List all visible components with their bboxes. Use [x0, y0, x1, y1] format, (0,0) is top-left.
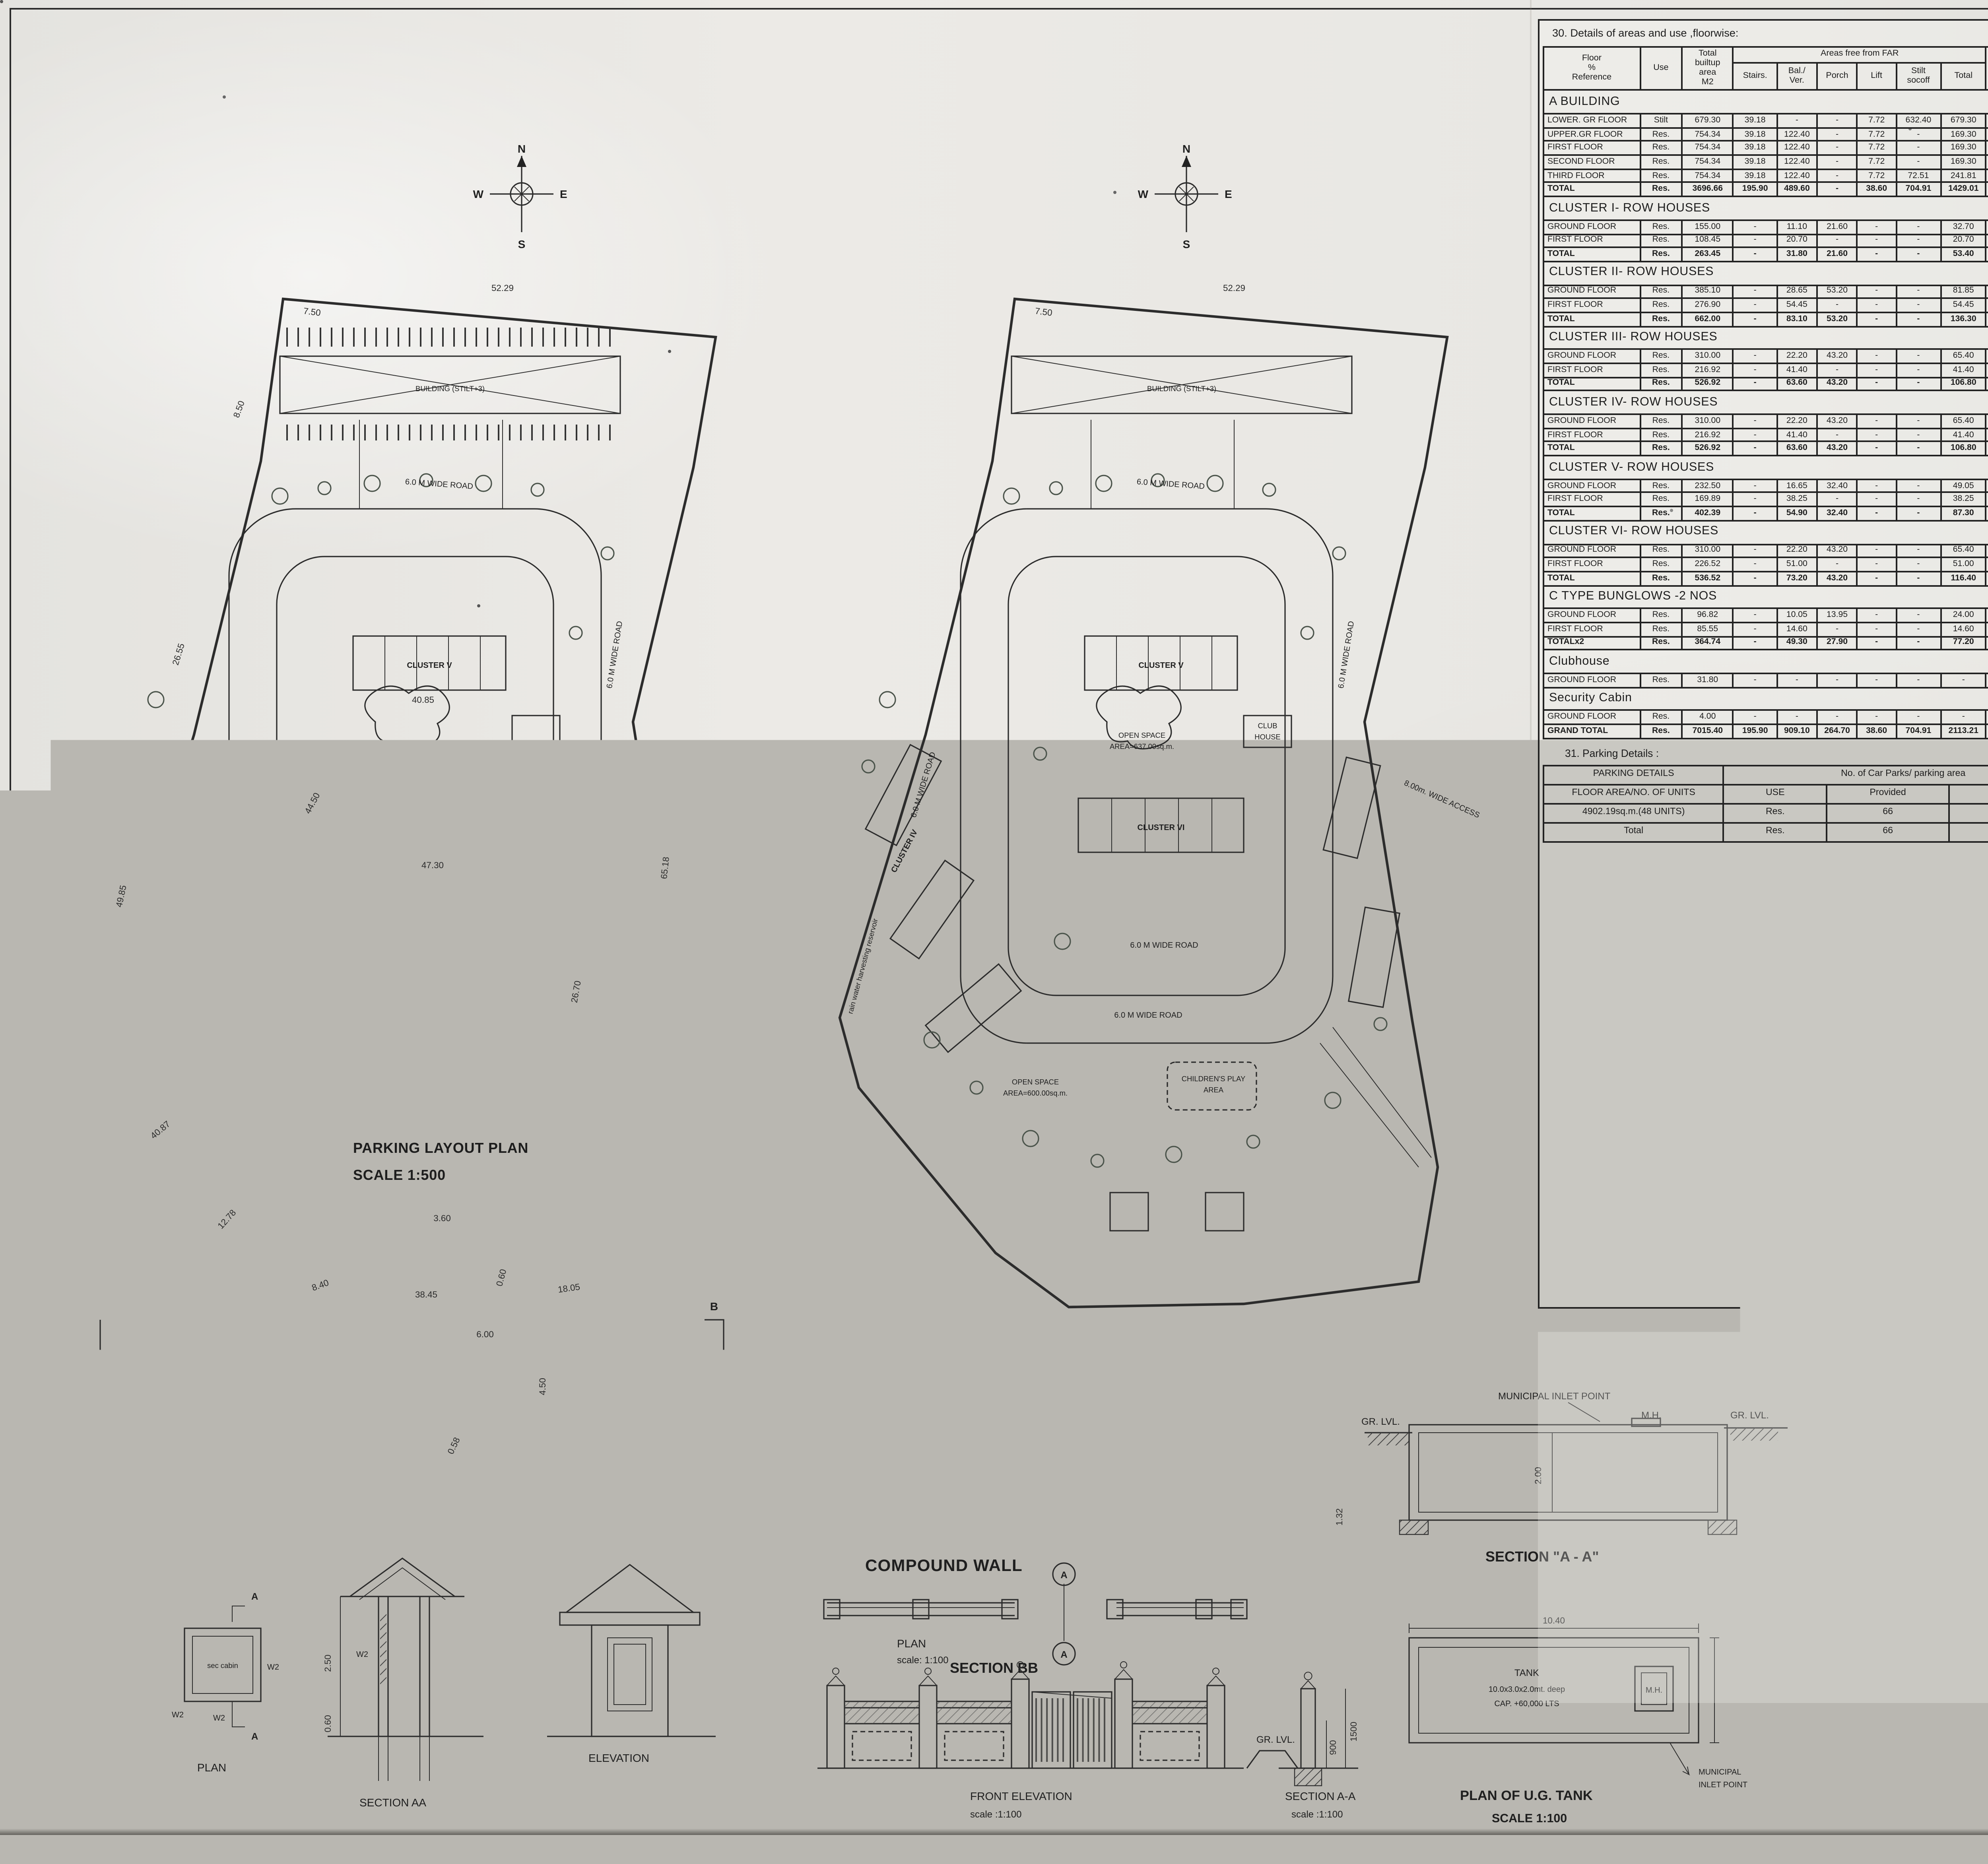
handwritten-note: Please check letter No. JTP| 415 |Queula…	[1803, 1472, 1988, 1539]
table-cell: SECOND FLOOR	[1543, 155, 1640, 169]
table-cell: 632.40	[1896, 114, 1941, 128]
ug-tank-section: MUNICIPAL INLET POINT M.H. GR. LVL. GR. …	[1361, 1380, 1791, 1568]
table-cell: FIRST FLOOR	[1543, 558, 1640, 572]
table-cell: 122.40	[1777, 142, 1817, 155]
table-cell: 66	[1949, 822, 1988, 842]
table-row: GROUND FLOORRes.155.00-11.1021.60--32.70…	[1543, 220, 1988, 234]
compass-n: N	[518, 143, 526, 155]
road-label: 6.0 M WIDE ROAD	[1114, 1011, 1182, 1020]
table-cell: 679.30	[1941, 114, 1986, 128]
table-cell: 7.72	[1857, 114, 1896, 128]
dim: 0.60	[323, 1715, 333, 1732]
table-cell: GRAND TOTAL	[1543, 724, 1640, 738]
table-cell: -	[1734, 248, 1777, 262]
table-cell: TOTAL	[1543, 507, 1640, 521]
table-cell: 232.50	[1682, 479, 1734, 493]
dim: 7.50	[303, 306, 321, 318]
dim: 8.40	[1042, 1278, 1062, 1293]
table-row: TOTALRes.3696.66195.90489.60-38.60704.91…	[1543, 183, 1988, 197]
open-space-area: AREA=637.00sq.m.	[378, 742, 443, 751]
table-cell: Res.	[1640, 711, 1682, 725]
table-cell: TOTALx2	[1543, 636, 1640, 650]
prop-cwall-label: Prop C/Wall	[1005, 1175, 1041, 1206]
table-row: TOTALRes.526.92-63.6043.20--106.80420.12…	[1543, 377, 1988, 391]
table-cell: -	[1941, 673, 1986, 687]
col-header-stilt: Stilt socoff	[1896, 63, 1941, 91]
table-cell: 310.00	[1682, 544, 1734, 558]
table-cell: 63.60	[1777, 442, 1817, 456]
table-row: CLUSTER V- ROW HOUSES	[1543, 456, 1988, 479]
table-cell: -	[1817, 623, 1857, 636]
dim: 47.30	[421, 860, 444, 870]
table-cell: 83.10	[1777, 312, 1817, 326]
table-cell: GROUND FLOOR	[1543, 711, 1640, 725]
table-cell: Res.	[1640, 636, 1682, 650]
road-label: 6.0 M WIDE ROAD	[605, 621, 625, 689]
table-cell: 65.40	[1941, 544, 1986, 558]
details-table-title: 30. Details of areas and use ,floorwise:	[1552, 29, 1988, 40]
table-cell: 526.92	[1682, 377, 1734, 391]
table-cell: 364.74	[1682, 636, 1734, 650]
ground-level-label: G.LVL	[712, 1461, 739, 1472]
table-cell: 11.10	[1777, 220, 1817, 234]
cluster-v-label: CLUSTER V	[1138, 661, 1184, 670]
table-cell: -	[1857, 609, 1896, 623]
table-cell: 1429.01	[1941, 183, 1986, 197]
table-cell: 63.60	[1777, 377, 1817, 391]
table-row: CLUSTER IV- ROW HOUSES	[1543, 391, 1988, 414]
table-cell: 106.80	[1941, 442, 1986, 456]
table-row: TOTALRes.263.45-31.8021.60--53.40210.052…	[1543, 248, 1988, 262]
table-cell: THIRD FLOOR	[1543, 169, 1640, 183]
table-cell: 43.20	[1817, 572, 1857, 586]
table-cell: -	[1817, 363, 1857, 377]
table-cell: Res.	[1640, 248, 1682, 262]
table-cell: -	[1734, 623, 1777, 636]
table-row: GRAND TOTALRes.7015.40195.90909.10264.70…	[1543, 724, 1988, 738]
table-cell: -	[1857, 507, 1896, 521]
window-mark: W2	[267, 1663, 279, 1672]
plan-label: PLAN	[897, 1637, 926, 1650]
table-cell: FIRST FLOOR	[1543, 623, 1640, 636]
ug-tank-mark	[1390, 671, 1415, 687]
table-row: GROUND FLOORRes.31.80------31.800.39%	[1543, 673, 1988, 687]
table-cell: FIRST FLOOR	[1543, 234, 1640, 248]
col-header-total-builtup: Total builtup area M2	[1682, 47, 1734, 91]
table-cell: 66	[1827, 822, 1949, 842]
table-cell: -	[1734, 363, 1777, 377]
table-section-label: CLUSTER II- ROW HOUSES	[1543, 262, 1988, 285]
table-cell: -	[1857, 220, 1896, 234]
compound-wall-title: COMPOUND WALL	[865, 1556, 1023, 1575]
table-cell: -	[1777, 711, 1817, 725]
col-header-lift: Lift	[1857, 63, 1896, 91]
table-cell: -	[1734, 479, 1777, 493]
parking-header: No. of Car Parks/ parking area	[1724, 765, 1988, 784]
road-label: 6.0 M WIDE ROAD	[178, 751, 206, 819]
table-cell: 263.45	[1682, 248, 1734, 262]
col-header-porch: Porch	[1817, 63, 1857, 91]
table-cell: 51.00	[1777, 558, 1817, 572]
table-cell: 704.91	[1896, 183, 1941, 197]
dim: 52.29	[1223, 283, 1245, 293]
table-cell: 287.54	[1986, 636, 1988, 650]
front-elevation-scale: scale :1:100	[970, 1809, 1021, 1820]
table-cell: 210.05	[1986, 248, 1988, 262]
table-cell: 169.30	[1941, 128, 1986, 142]
table-cell: -	[1734, 572, 1777, 586]
fold-line	[1530, 0, 1532, 1336]
table-cell: 70.95	[1986, 623, 1988, 636]
table-cell: Res.	[1640, 220, 1682, 234]
ug-tank-label: U.G Tank	[1423, 661, 1453, 669]
table-cell: 909.10	[1777, 724, 1817, 738]
dim: 4.50	[538, 1378, 547, 1395]
tank-capacity-label: CAP. +60,000 LTS	[1494, 1699, 1559, 1708]
table-cell: Res.	[1724, 803, 1827, 822]
dim: 5.25	[258, 1365, 268, 1383]
table-cell: Res.	[1640, 142, 1682, 155]
table-cell: 73.20	[1777, 572, 1817, 586]
table-cell: -	[1896, 234, 1941, 248]
table-cell: -	[1896, 544, 1941, 558]
table-row: FIRST FLOORRes.226.52-51.00---51.00175.5…	[1543, 558, 1988, 572]
pool-area-label: AREA OF SWIMMING POOL=44. 00 M2	[270, 1431, 482, 1445]
table-cell: 7015.40	[1682, 724, 1734, 738]
table-cell: Res.	[1640, 285, 1682, 299]
table-cell: 53.40	[1941, 248, 1986, 262]
table-cell: -	[1896, 363, 1941, 377]
table-cell: 754.34	[1682, 169, 1734, 183]
table-cell: 43.20	[1817, 377, 1857, 391]
plan-label: PLAN	[197, 1761, 226, 1774]
table-row: FIRST FLOORRes.216.92-41.40---41.40175.5…	[1543, 428, 1988, 442]
children-play-label: CHILDREN'S PLAY	[1182, 1075, 1246, 1083]
table-cell: Res.	[1640, 363, 1682, 377]
table-cell: GROUND FLOOR	[1543, 609, 1640, 623]
section-a-mark: A	[1060, 1649, 1067, 1660]
building-label: BUILDING (STILT+3)	[1147, 384, 1216, 393]
col-header-use: Use	[1640, 47, 1682, 91]
transformer	[1365, 592, 1387, 604]
table-row: UPPER.GR FLOORRes.754.3439.18122.40-7.72…	[1543, 128, 1988, 142]
table-cell: 65.40	[1941, 414, 1986, 428]
table-cell: 7.72	[1857, 128, 1896, 142]
table-section-label: C TYPE BUNGLOWS -2 NOS	[1543, 585, 1988, 609]
table-cell: -	[1896, 414, 1941, 428]
municipal-inlet-label: INLET POINT	[1699, 1781, 1747, 1789]
table-row: FIRST FLOORRes.169.89-38.25---38.25131.6…	[1543, 493, 1988, 507]
table-cell: -	[1857, 558, 1896, 572]
table-cell: -	[1734, 349, 1777, 363]
municipal-inlet-label: MUNICIPAL	[1699, 1768, 1741, 1777]
road-label: 6.0 M WIDE ROAD	[1136, 477, 1205, 491]
table-cell: 489.60	[1777, 183, 1817, 197]
table-cell: 31.80	[1986, 673, 1988, 687]
table-cell: FIRST FLOOR	[1543, 493, 1640, 507]
table-cell: -	[1857, 234, 1896, 248]
table-cell: 754.34	[1682, 142, 1734, 155]
section-aa-label: SECTION A-A	[1285, 1790, 1356, 1802]
table-row: TOTALRes.526.92-63.6043.20--106.80420.12…	[1543, 442, 1988, 456]
table-cell: 96.82	[1682, 609, 1734, 623]
road-label: 6.0 M WIDE ROAD	[405, 477, 473, 491]
table-cell: -	[1857, 479, 1896, 493]
north-compass: N W E S	[477, 143, 566, 258]
table-cell: 122.40	[1777, 155, 1817, 169]
table-cell: 31.80	[1682, 673, 1734, 687]
wall-panels	[845, 1701, 1207, 1760]
table-cell: 512.54	[1986, 169, 1988, 183]
table-cell: -	[1896, 558, 1941, 572]
table-section-label: CLUSTER VI- ROW HOUSES	[1543, 520, 1988, 544]
table-cell: 54.45	[1777, 299, 1817, 312]
municipal-inlet-label: MUNICIPAL INLET POINT	[1498, 1391, 1611, 1402]
table-cell: Res.	[1640, 609, 1682, 623]
table-cell: TOTAL	[1543, 248, 1640, 262]
table-cell: Res.	[1640, 572, 1682, 586]
table-cell: 3696.66	[1682, 183, 1734, 197]
section-b-label: B	[710, 1300, 718, 1313]
table-cell: -	[1857, 623, 1896, 636]
table-cell: TOTAL	[1543, 377, 1640, 391]
table-section-label: Clubhouse	[1543, 650, 1988, 673]
table-cell: 226.52	[1682, 558, 1734, 572]
section-aa-label: SECTION AA	[359, 1796, 426, 1809]
section-aa-scale: scale :1:100	[1291, 1809, 1343, 1820]
tank-plan-label: PLAN OF U.G. TANK	[1460, 1788, 1593, 1803]
table-cell: -	[1734, 220, 1777, 234]
table-cell: -	[1734, 544, 1777, 558]
table-cell: 4902.19sq.m.(48 UNITS)	[1543, 803, 1724, 822]
table-cell: -	[1734, 312, 1777, 326]
north-compass: N W E S	[1142, 143, 1231, 258]
table-cell: 41.40	[1777, 428, 1817, 442]
table-cell: 244.60	[1986, 544, 1988, 558]
table-cell: 420.12	[1986, 377, 1988, 391]
open-space-label: OPEN SPACE	[387, 731, 434, 739]
table-cell: 310.00	[1682, 414, 1734, 428]
table-cell: Res.	[1640, 507, 1682, 521]
table-cell: -	[1734, 442, 1777, 456]
trees-note-prefix: NOTE-	[1268, 1156, 1296, 1167]
table-cell: 536.52	[1682, 572, 1734, 586]
villa-label: 'C' VILLA	[1114, 1240, 1144, 1248]
table-cell: -	[1896, 479, 1941, 493]
table-cell: -	[1857, 673, 1896, 687]
parking-details-table: PARKING DETAILS No. of Car Parks/ parkin…	[1543, 764, 1988, 842]
table-cell: 43.20	[1817, 349, 1857, 363]
table-cell: -	[1817, 493, 1857, 507]
table-cell: GROUND FLOOR	[1543, 479, 1640, 493]
table-cell: -	[1941, 711, 1986, 725]
table-cell: 7.72	[1857, 169, 1896, 183]
section-b-mark	[705, 1320, 724, 1361]
table-cell: 39.18	[1734, 155, 1777, 169]
table-cell: 4902.19	[1986, 724, 1988, 738]
children-play-label: AREA	[472, 1086, 492, 1094]
table-cell: 20.70	[1777, 234, 1817, 248]
table-cell: FIRST FLOOR	[1543, 363, 1640, 377]
transformer-label: 7.00x3.0 Transformer	[1375, 578, 1444, 587]
table-cell: TOTAL	[1543, 183, 1640, 197]
table-cell: Res.	[1640, 377, 1682, 391]
road-label: 6.0 M WIDE ROAD	[382, 1011, 450, 1020]
table-cell: 122.30	[1986, 220, 1988, 234]
table-cell: Res.	[1640, 349, 1682, 363]
parking-layout-plan-drawing: BUILDING (STILT+3) 6.0 M WIDE ROAD 6.0 M…	[41, 273, 741, 1164]
table-cell: Total	[1543, 822, 1724, 842]
table-cell: 216.92	[1682, 363, 1734, 377]
compass-e: E	[560, 188, 567, 200]
manhole-label: M.H.	[1641, 1410, 1662, 1421]
ground-level-label: GR. LVL.	[1256, 1734, 1295, 1745]
site-plan-title-line1: SITE PLAN	[1081, 1139, 1174, 1166]
dim: 7.50	[1035, 306, 1053, 318]
table-cell: 38.25	[1941, 493, 1986, 507]
table-cell: -	[1777, 114, 1817, 128]
dim: 10.40	[1543, 1616, 1565, 1625]
table-row: A BUILDING	[1543, 91, 1988, 114]
compass-s: S	[1183, 238, 1190, 250]
open-space-area: AREA=600.00sq.m.	[1003, 1089, 1068, 1097]
parking-plan-scale: SCALE 1:500	[353, 1162, 528, 1189]
parking-col: Provided	[1827, 784, 1949, 803]
table-cell: 264.70	[1817, 724, 1857, 738]
sec-cabin-room-label: sec cabin	[207, 1661, 238, 1670]
table-cell: -	[1817, 128, 1857, 142]
parking-col: USE	[1724, 784, 1827, 803]
cluster-vi-label: CLUSTER VI	[406, 823, 453, 832]
dim: 40.85	[412, 695, 434, 705]
rainwater-label: rain water harvesting reservoir	[846, 917, 879, 1014]
table-cell: 39.18	[1734, 114, 1777, 128]
table-cell: 41.40	[1941, 428, 1986, 442]
table-cell: -	[1896, 428, 1941, 442]
table-cell: 32.40	[1817, 479, 1857, 493]
security-cabin-label: cabin	[1423, 946, 1440, 954]
table-section-label: CLUSTER I- ROW HOUSES	[1543, 197, 1988, 220]
table-cell: -	[1857, 349, 1896, 363]
table-cell: 87.75	[1986, 234, 1988, 248]
table-cell: 43.20	[1817, 414, 1857, 428]
table-cell: -	[1857, 285, 1896, 299]
table-cell: 49.30	[1777, 636, 1817, 650]
table-cell: -	[1857, 544, 1896, 558]
table-cell: UPPER.GR FLOOR	[1543, 128, 1640, 142]
ground-level-label: G.LVL	[1323, 1461, 1349, 1472]
dim: 3.40	[1718, 1685, 1728, 1702]
dim: 26.70	[569, 980, 582, 1004]
table-cell: -	[1896, 623, 1941, 636]
table-cell: 175.52	[1986, 558, 1988, 572]
wall-section: 900 1500	[1279, 1672, 1359, 1786]
table-cell: 662.00	[1682, 312, 1734, 326]
table-row: FIRST FLOORRes.85.55-14.60---14.6070.950…	[1543, 623, 1988, 636]
table-cell: 39.18	[1734, 169, 1777, 183]
table-cell: 420.12	[1986, 442, 1988, 456]
ug-tank-label: cap 60,000 ltrs	[1414, 672, 1462, 681]
table-cell: 175.52	[1986, 428, 1988, 442]
table-cell: 51.00	[1941, 558, 1986, 572]
table-cell: -	[1777, 673, 1817, 687]
table-cell: 222.45	[1986, 299, 1988, 312]
table-cell: Res.	[1640, 155, 1682, 169]
table-cell: Res.	[1640, 544, 1682, 558]
parking-header: PARKING DETAILS	[1543, 765, 1724, 784]
site-plan-title: SITE PLAN SCALE 1:500	[1081, 1139, 1174, 1193]
table-cell: 49.05	[1941, 479, 1986, 493]
table-cell: 22.20	[1777, 349, 1817, 363]
table-cell: 21.60	[1817, 248, 1857, 262]
table-cell: 87.30	[1941, 507, 1986, 521]
dim: 0.60	[134, 1277, 150, 1297]
table-cell: -	[1817, 428, 1857, 442]
open-space-area: AREA=600.00sq.m.	[272, 1089, 336, 1097]
table-cell: -	[1734, 493, 1777, 507]
table-cell: 16.65	[1777, 479, 1817, 493]
dim: 8.50	[231, 400, 247, 419]
table-cell: GROUND FLOOR	[1543, 349, 1640, 363]
garbage-bins-label: garbage	[1418, 985, 1445, 994]
security-cabin-label: security	[1419, 935, 1444, 943]
table-cell: -	[1896, 248, 1941, 262]
table-cell: 136.30	[1941, 312, 1986, 326]
table-row: C TYPE BUNGLOWS -2 NOS	[1543, 585, 1988, 609]
table-cell: -	[1734, 414, 1777, 428]
dim: 2.00	[214, 1601, 231, 1611]
table-cell: -	[1857, 299, 1896, 312]
access-road-label: 8.00m. WIDE ACCESS	[1403, 779, 1481, 820]
table-cell: -	[1734, 285, 1777, 299]
table-cell: 0.00	[1986, 114, 1988, 128]
dim: 26.55	[902, 642, 918, 666]
security-cabin-drawings: 2.00 2.00 sec cabin W2 W2 W2 A A PLAN 2.…	[140, 1546, 763, 1835]
table-cell: GROUND FLOOR	[1543, 673, 1640, 687]
table-cell: 122.40	[1777, 169, 1817, 183]
dim: 49.85	[846, 884, 860, 908]
dim: 65.18	[1390, 856, 1403, 879]
table-cell: 77.20	[1941, 636, 1986, 650]
table-row: TotalRes.6666	[1543, 822, 1988, 842]
table-cell: 39.18	[1734, 142, 1777, 155]
details-areas-table: Floor % Reference Use Total builtup area…	[1543, 46, 1988, 739]
dim: 7.20	[177, 1329, 195, 1339]
open-space-area: AREA=637.00sq.m.	[1110, 742, 1174, 751]
table-cell: FIRST FLOOR	[1543, 299, 1640, 312]
table-cell: 169.30	[1941, 142, 1986, 155]
table-cell: 7.72	[1857, 142, 1896, 155]
table-cell: -	[1896, 636, 1941, 650]
planner-title: Dy. Town Planner	[1829, 1627, 1988, 1639]
col-header-floor: Floor % Reference	[1543, 47, 1640, 91]
road-label: 6.0 M WIDE ROAD	[1337, 621, 1356, 689]
dim: 6.00	[476, 1329, 494, 1339]
table-row: TOTALRes.662.00-83.1053.20--136.30525.70…	[1543, 312, 1988, 326]
table-cell: 38.25	[1777, 493, 1817, 507]
table-cell: 39.18	[1734, 128, 1777, 142]
table-cell: 32.70	[1941, 220, 1986, 234]
table-cell: -	[1857, 414, 1896, 428]
table-row: GROUND FLOORRes.310.00-22.2043.20--65.40…	[1543, 544, 1988, 558]
villa-label: 'C' VILLA	[1209, 1240, 1240, 1248]
table-cell: 585.04	[1986, 128, 1988, 142]
road-label: 6.0 M WIDE ROAD	[1252, 1159, 1303, 1216]
table-cell: Res.	[1640, 493, 1682, 507]
table-row: CLUSTER III- ROW HOUSES	[1543, 326, 1988, 350]
dim: 1500	[1349, 1722, 1359, 1742]
dim: 2.00	[1533, 1467, 1543, 1484]
